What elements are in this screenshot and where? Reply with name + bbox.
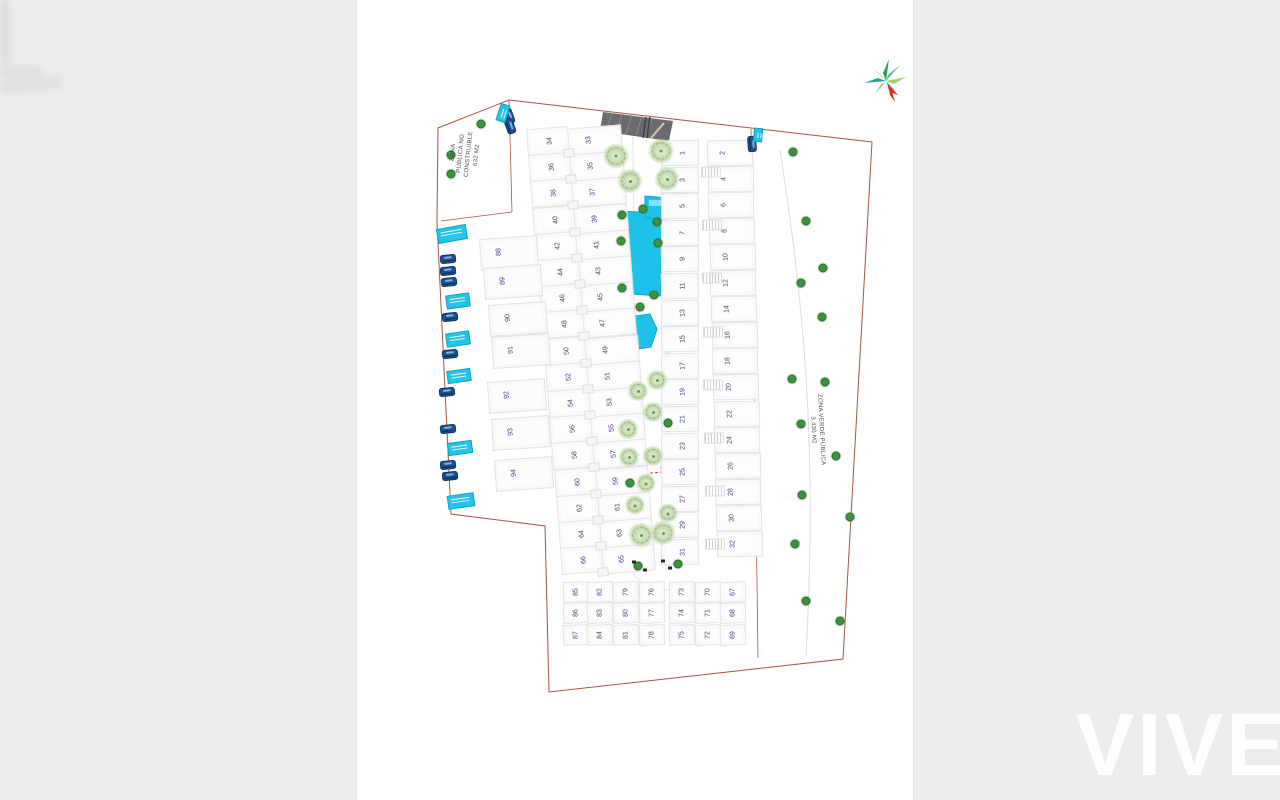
plot-number: 34	[546, 137, 554, 145]
stairs-icon	[702, 273, 722, 284]
plot-number: 66	[580, 556, 588, 564]
stairs-icon	[701, 220, 721, 231]
tree-dot-icon	[618, 211, 627, 220]
plot-number: 90	[504, 314, 512, 322]
plot-number: 64	[578, 530, 586, 538]
plot-number: 94	[510, 469, 518, 477]
tree-dot-icon	[846, 513, 855, 522]
plot-number: 24	[727, 436, 734, 444]
plot-number: 36	[548, 163, 556, 171]
tree-icon	[650, 521, 676, 545]
car-icon	[439, 387, 456, 398]
plot-number: 25	[679, 468, 686, 476]
plot-cell	[712, 348, 758, 375]
car-icon	[440, 460, 457, 471]
plot-number: 73	[678, 588, 685, 596]
tree-icon	[642, 446, 664, 466]
plot-number: 65	[618, 555, 626, 563]
tree-icon	[636, 474, 657, 493]
plot-number: 93	[507, 428, 515, 436]
stairs-icon	[703, 326, 723, 337]
plot-number: 89	[499, 277, 507, 285]
tree-dot-icon	[819, 264, 828, 273]
plot-number: 17	[679, 362, 686, 370]
plot-number: 51	[604, 372, 612, 380]
tree-dot-icon	[798, 491, 807, 500]
tree-icon	[617, 169, 643, 193]
plot-number: 55	[608, 424, 616, 432]
plot-cell	[488, 301, 548, 337]
plot-number: 33	[585, 136, 593, 144]
tree-dot-icon	[791, 540, 800, 549]
tree-dot-icon	[836, 617, 845, 626]
plot-number: 31	[679, 548, 686, 556]
plot-number: 48	[561, 320, 569, 328]
plot-cell	[713, 400, 759, 427]
parking-label	[447, 492, 476, 510]
stairs-icon	[703, 379, 723, 390]
tree-icon	[625, 496, 646, 515]
tree-icon	[617, 419, 639, 439]
tree-icon	[627, 381, 649, 401]
plot-number: 11	[679, 282, 686, 289]
plot-number: 68	[729, 609, 736, 617]
plot-number: 61	[614, 503, 622, 511]
plot-number: 46	[559, 294, 567, 302]
tree-dot-icon	[802, 217, 811, 226]
stairs-icon	[701, 166, 721, 177]
tree-dot-icon	[821, 378, 830, 387]
plot-number: 37	[589, 188, 597, 196]
plot-number: 82	[596, 588, 603, 596]
porch-icon	[574, 279, 586, 289]
tree-dot-icon	[664, 419, 673, 428]
plot-cell	[716, 504, 762, 531]
plot-number: 29	[679, 521, 686, 529]
plot-cell	[707, 140, 753, 167]
porch-icon	[588, 462, 600, 472]
plot-number: 69	[729, 631, 736, 639]
plot-cell	[715, 452, 761, 479]
tree-dot-icon	[617, 237, 626, 246]
site-plan-screenshot: 1357911131517192123252729312468101214161…	[0, 0, 1280, 800]
stairs-icon	[704, 432, 724, 443]
plot-number: 19	[679, 388, 686, 396]
plot-cell	[487, 378, 547, 414]
plot-number: 9	[679, 257, 686, 261]
plot-cell	[491, 333, 551, 369]
porch-icon	[597, 567, 609, 577]
plot-number: 43	[596, 267, 604, 275]
plot-number: 30	[729, 514, 736, 522]
plot-number: 79	[622, 588, 629, 596]
plan-items: 1357911131517192123252729312468101214161…	[0, 0, 1280, 800]
plot-number: 3	[679, 178, 686, 182]
porch-icon	[582, 384, 594, 394]
plot-number: 13	[679, 309, 686, 317]
plot-number: 16	[724, 331, 731, 339]
car-icon	[440, 254, 457, 265]
plot-number: 77	[648, 609, 655, 617]
porch-icon	[569, 227, 581, 237]
plot-number: 4	[720, 177, 727, 181]
porch-icon	[586, 436, 598, 446]
tree-icon	[603, 144, 630, 169]
plot-number: 7	[679, 231, 686, 235]
plot-number: 63	[616, 529, 624, 537]
tree-dot-icon	[653, 218, 662, 227]
car-icon	[442, 471, 459, 482]
plot-number: 52	[565, 373, 573, 381]
parking-label	[447, 440, 474, 456]
plot-number: 2	[719, 151, 726, 155]
plot-number: 72	[704, 631, 711, 639]
plot-number: 80	[622, 609, 629, 617]
car-icon	[442, 349, 459, 360]
plot-number: 88	[495, 248, 503, 256]
plot-number: 10	[722, 253, 729, 261]
porch-icon	[584, 410, 596, 420]
tree-dot-icon	[789, 148, 798, 157]
bench-icon	[632, 561, 636, 564]
plot-number: 49	[602, 345, 610, 353]
porch-icon	[576, 305, 588, 315]
tree-dot-icon	[788, 375, 797, 384]
plot-number: 5	[679, 204, 686, 208]
plot-cell	[491, 415, 551, 451]
tree-dot-icon	[654, 239, 663, 248]
plot-number: 84	[596, 631, 603, 639]
plot-number: 83	[596, 609, 603, 617]
plot-cell	[494, 456, 554, 492]
bench-icon	[668, 567, 672, 570]
plot-number: 26	[727, 462, 734, 470]
tree-dot-icon	[618, 284, 627, 293]
tree-icon	[642, 402, 664, 422]
parking-label	[445, 292, 471, 309]
plot-number: 35	[587, 162, 595, 170]
plot-number: 8	[721, 229, 728, 233]
plot-number: 54	[567, 399, 575, 407]
porch-icon	[572, 253, 584, 263]
plot-number: 21	[679, 415, 686, 423]
faint-watermark	[0, 66, 42, 78]
tree-icon	[654, 167, 680, 191]
tree-dot-icon	[639, 205, 648, 214]
plot-number: 78	[648, 631, 655, 639]
plot-number: 27	[679, 495, 686, 503]
bench-icon	[661, 560, 665, 563]
corner-watermark: VIVE	[1075, 694, 1280, 796]
plot-number: 23	[679, 442, 686, 450]
plot-number: 87	[572, 631, 579, 639]
tree-dot-icon	[636, 303, 645, 312]
plot-number: 67	[729, 588, 736, 596]
parking-label	[445, 330, 471, 347]
plot-number: 59	[612, 476, 620, 484]
plot-number: 58	[572, 451, 580, 459]
plot-number: 1	[679, 151, 686, 155]
plot-number: 20	[725, 383, 732, 391]
plot-number: 22	[726, 410, 733, 418]
plot-number: 40	[553, 215, 561, 223]
plot-cell	[483, 264, 543, 300]
plot-number: 41	[593, 241, 601, 249]
tree-icon	[658, 504, 679, 523]
plot-number: 47	[600, 319, 608, 327]
plot-cell	[600, 544, 656, 575]
plot-number: 81	[622, 631, 629, 639]
car-icon	[441, 277, 458, 288]
car-icon	[440, 266, 457, 277]
zona-publica-label: ZONA PÚBLICA NO CONSTRUIBLE 632 M2	[431, 119, 501, 189]
parking-label	[753, 128, 763, 143]
parking-label	[436, 224, 468, 244]
tree-dot-icon	[797, 279, 806, 288]
plot-number: 75	[678, 631, 685, 639]
porch-icon	[565, 174, 577, 184]
plot-number: 86	[572, 609, 579, 617]
plot-number: 74	[678, 609, 685, 617]
plot-number: 91	[507, 346, 515, 354]
zona-verde-label: ZONA VERDE PÚBLICA 3.430 M2	[782, 388, 850, 471]
parking-label	[446, 368, 472, 384]
porch-icon	[563, 148, 575, 158]
stairs-icon	[704, 486, 724, 497]
plot-number: 15	[679, 335, 686, 343]
plot-number: 18	[725, 357, 732, 365]
plot-number: 28	[728, 488, 735, 496]
plot-number: 92	[503, 391, 511, 399]
porch-icon	[593, 515, 605, 525]
plot-number: 70	[704, 588, 711, 596]
plot-number: 45	[598, 293, 606, 301]
stairs-icon	[705, 539, 725, 550]
tree-dot-icon	[802, 597, 811, 606]
porch-icon	[590, 489, 602, 499]
plot-number: 12	[723, 279, 730, 287]
car-icon	[442, 312, 459, 323]
tree-icon	[618, 447, 640, 467]
porch-icon	[567, 200, 579, 210]
car-icon	[440, 424, 457, 435]
porch-icon	[580, 358, 592, 368]
tree-dot-icon	[650, 291, 659, 300]
plot-number: 50	[563, 346, 571, 354]
porch-icon	[578, 331, 590, 341]
tree-icon	[646, 370, 668, 390]
plot-cell	[711, 296, 757, 323]
plot-number: 39	[591, 214, 599, 222]
plot-number: 85	[572, 588, 579, 596]
tree-dot-icon	[626, 479, 635, 488]
plot-number: 42	[555, 242, 563, 250]
bench-icon	[643, 569, 647, 572]
porch-icon	[595, 541, 607, 551]
plot-number: 76	[648, 588, 655, 596]
tree-dot-icon	[818, 313, 827, 322]
tree-dot-icon	[674, 560, 683, 569]
plot-number: 32	[729, 540, 736, 548]
tree-icon	[648, 139, 675, 164]
plot-number: 38	[550, 189, 558, 197]
plot-number: 57	[610, 450, 618, 458]
plot-number: 60	[574, 477, 582, 485]
plot-number: 6	[721, 203, 728, 207]
plot-number: 71	[704, 609, 711, 617]
plot-number: 53	[606, 398, 614, 406]
faint-watermark	[0, 0, 10, 66]
plot-number: 56	[570, 425, 578, 433]
plot-number: 44	[557, 268, 565, 276]
plot-cell	[709, 244, 755, 271]
plot-cell	[708, 192, 754, 219]
plot-number: 14	[723, 305, 730, 313]
plot-number: 62	[576, 504, 584, 512]
